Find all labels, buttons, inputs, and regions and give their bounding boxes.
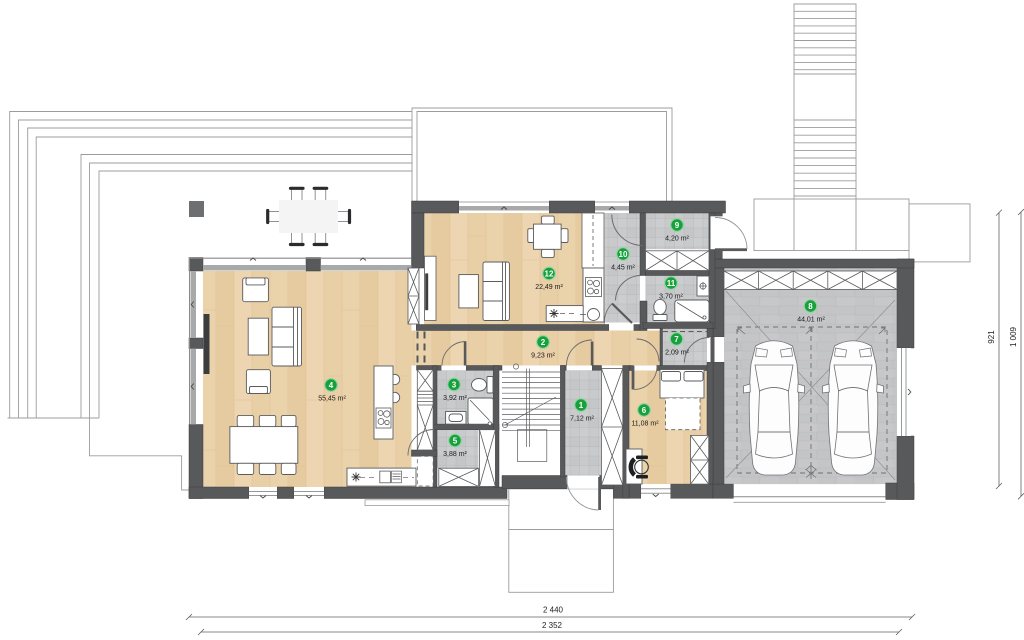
svg-text:921: 921 (987, 330, 996, 344)
svg-text:7: 7 (674, 335, 679, 344)
svg-text:11,08 m²: 11,08 m² (631, 421, 659, 428)
svg-text:1: 1 (579, 401, 584, 410)
svg-text:3,88 m²: 3,88 m² (443, 451, 467, 458)
svg-text:9,23 m²: 9,23 m² (531, 353, 555, 360)
svg-text:4,45 m²: 4,45 m² (611, 265, 635, 272)
svg-text:2,09 m²: 2,09 m² (665, 350, 689, 357)
svg-text:55,45 m²: 55,45 m² (318, 396, 346, 403)
svg-text:5: 5 (453, 437, 458, 446)
svg-text:2 440: 2 440 (543, 606, 564, 615)
svg-text:1 009: 1 009 (1009, 326, 1018, 347)
svg-text:6: 6 (642, 406, 647, 415)
svg-text:10: 10 (619, 250, 628, 259)
svg-text:9: 9 (675, 221, 680, 230)
svg-text:8: 8 (808, 302, 813, 311)
svg-text:4,20 m²: 4,20 m² (665, 236, 689, 243)
svg-text:44,01 m²: 44,01 m² (797, 317, 825, 324)
svg-text:3,70 m²: 3,70 m² (659, 294, 683, 301)
svg-text:7,12 m²: 7,12 m² (570, 416, 594, 423)
svg-text:4: 4 (329, 381, 334, 390)
svg-text:2 352: 2 352 (542, 621, 563, 630)
svg-text:12: 12 (545, 270, 554, 279)
svg-text:3: 3 (452, 381, 457, 390)
svg-text:2: 2 (541, 338, 546, 347)
svg-text:3,92 m²: 3,92 m² (443, 395, 467, 402)
svg-text:22,49 m²: 22,49 m² (535, 284, 563, 291)
svg-text:11: 11 (667, 279, 676, 288)
